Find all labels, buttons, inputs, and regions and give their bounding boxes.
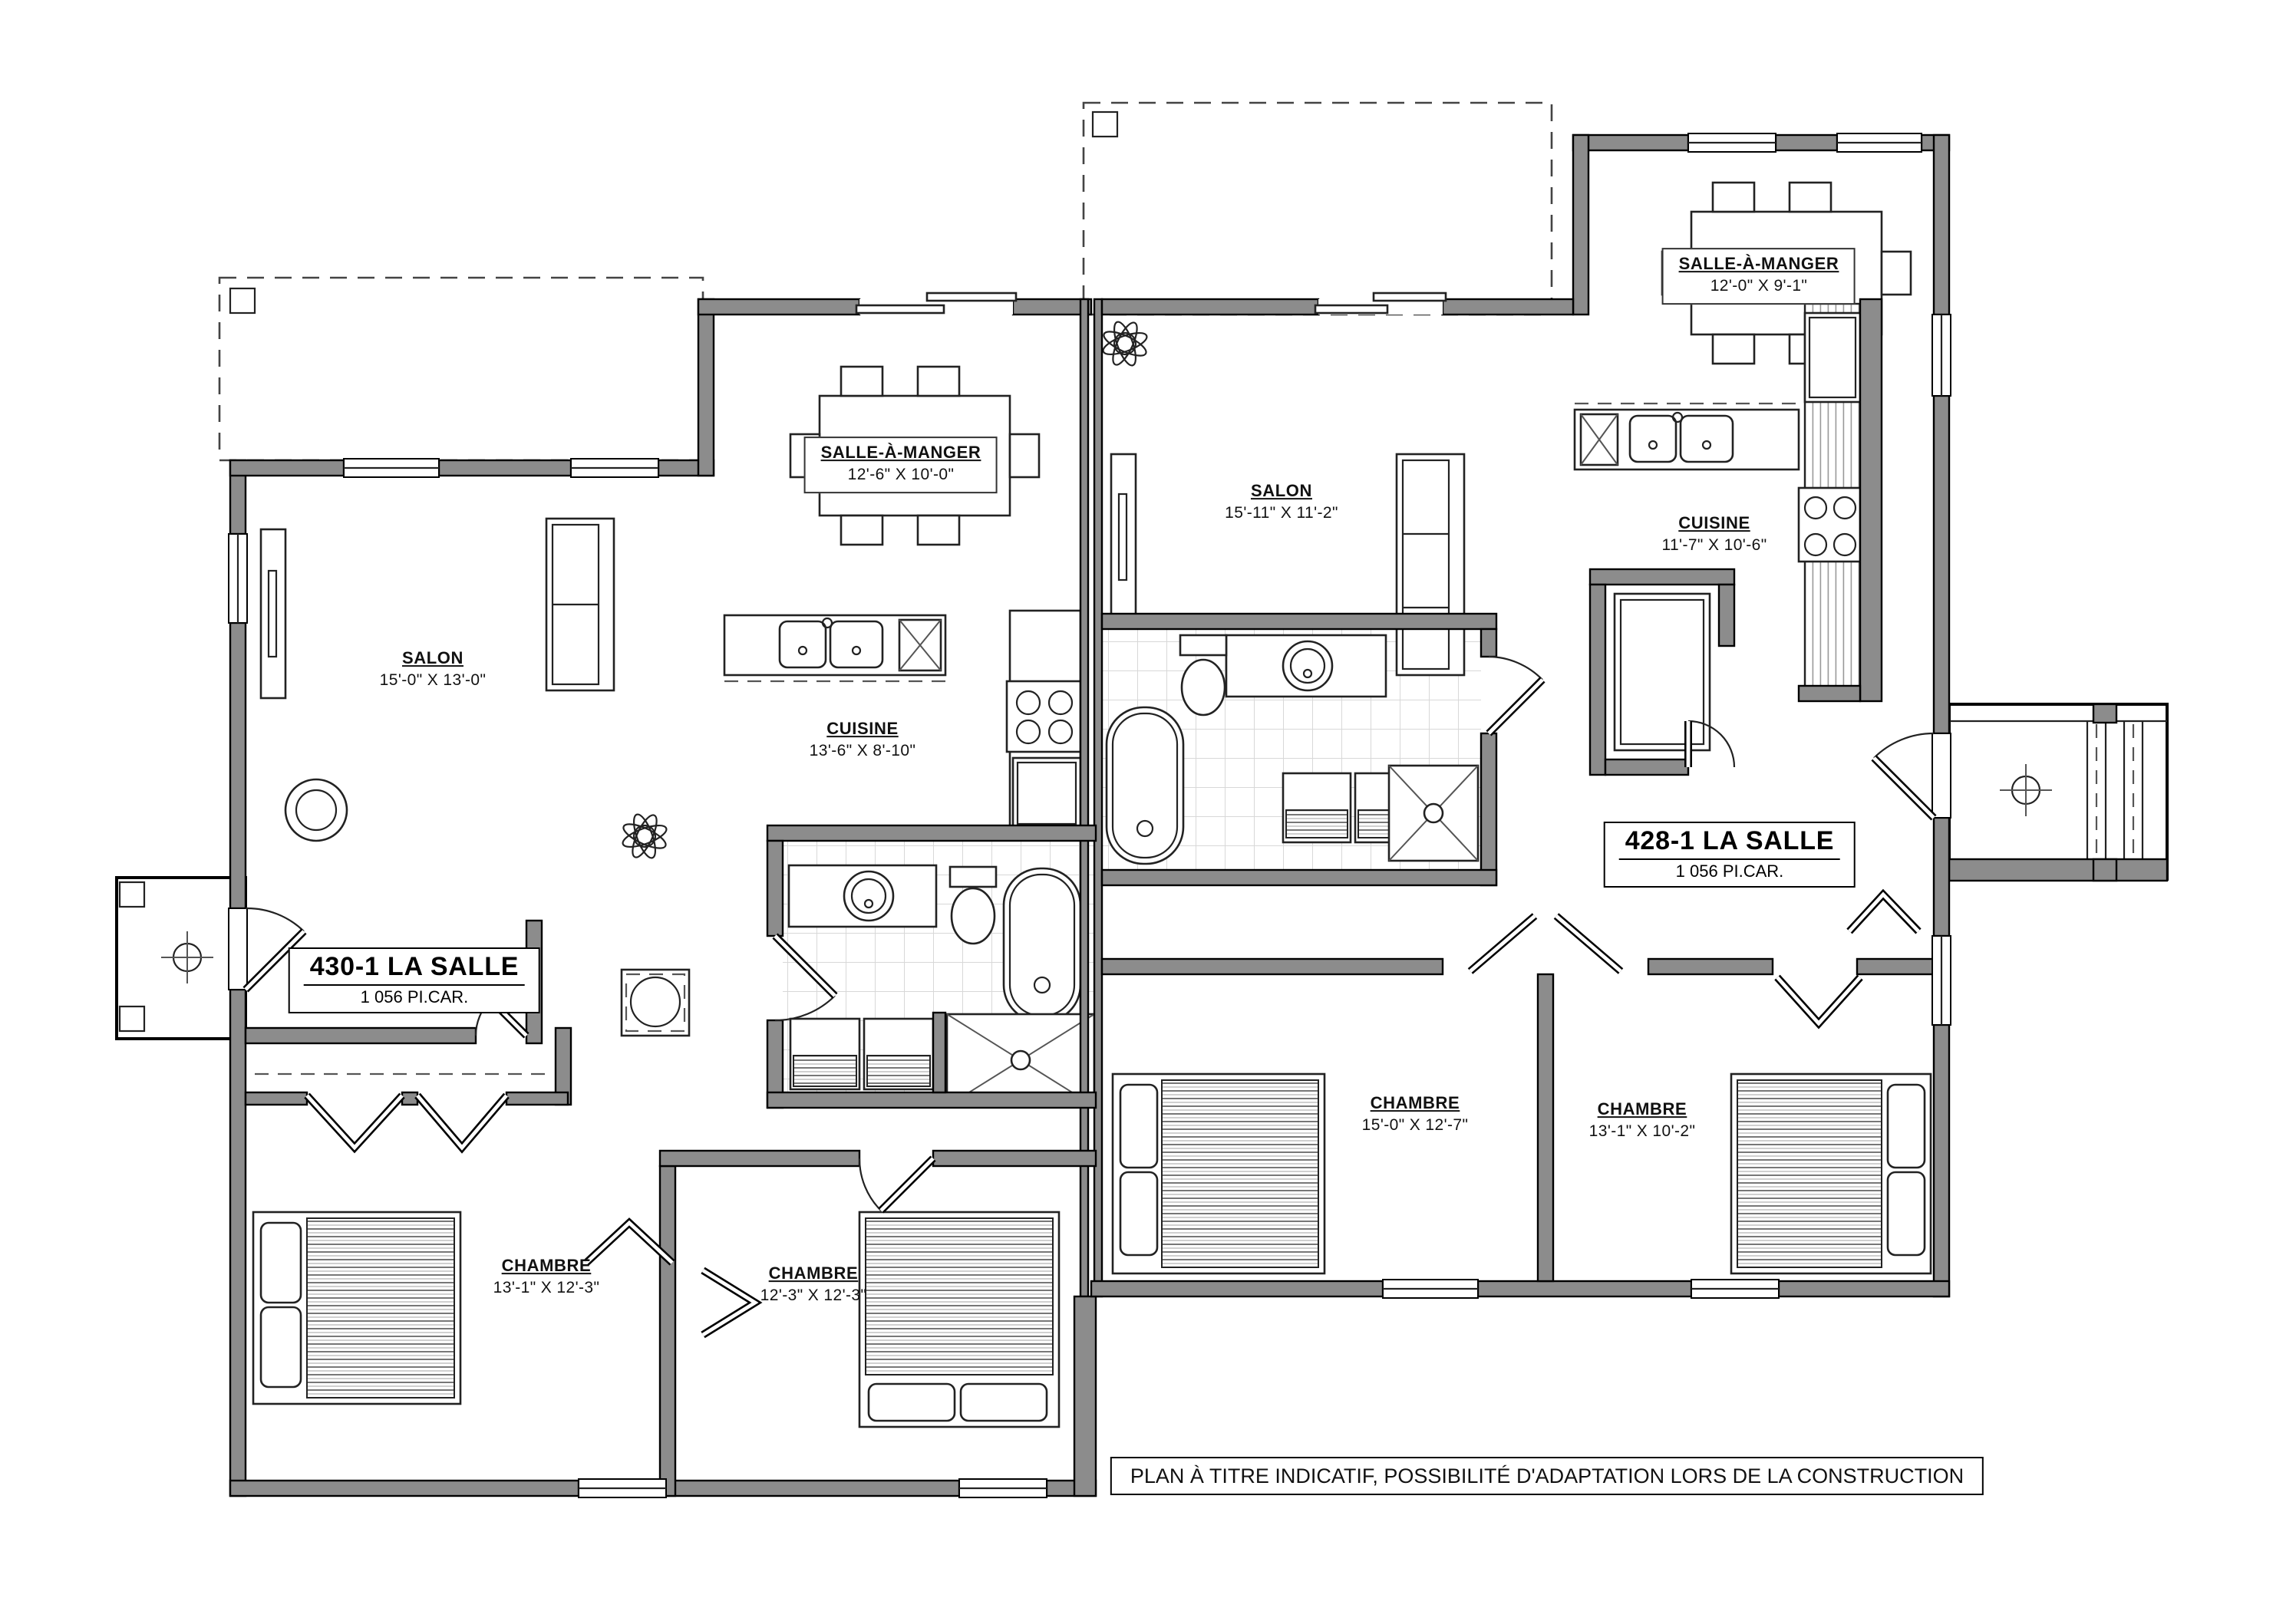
room-label-chambre1-right: CHAMBRE 15'-0" X 12'-7": [1362, 1095, 1469, 1136]
post-icon: [2093, 859, 2116, 881]
room-dims: 15'-0" X 12'-7": [1362, 1116, 1469, 1136]
room-name: SALLE-À-MANGER: [821, 444, 981, 466]
room-name: CHAMBRE: [1362, 1095, 1469, 1116]
room-name: CHAMBRE: [1589, 1101, 1696, 1122]
unit-area: 1 056 PI.CAR.: [304, 986, 526, 1007]
floor-plan-drawing: [0, 0, 2296, 1611]
patio-door-left: [856, 293, 1016, 315]
room-dims: 13'-6" X 8'-10": [810, 742, 916, 762]
unit-area: 1 056 PI.CAR.: [1619, 860, 1841, 881]
unit-name: 428-1 LA SALLE: [1619, 826, 1841, 860]
post-icon: [2093, 704, 2116, 723]
room-name: SALON: [1225, 483, 1338, 504]
pantry-shelf-icon: [1615, 594, 1710, 750]
unit-name: 430-1 LA SALLE: [304, 952, 526, 986]
room-label-salle-a-manger-left: SALLE-À-MANGER 12'-6" X 10'-0": [804, 437, 998, 493]
room-label-salle-a-manger-right: SALLE-À-MANGER 12'-0" X 9'-1": [1662, 248, 1856, 305]
room-name: CUISINE: [810, 720, 916, 742]
deck-left-dashed: [219, 278, 703, 460]
room-dims: 13'-1" X 12'-3": [493, 1279, 600, 1299]
room-label-chambre1-left: CHAMBRE 13'-1" X 12'-3": [493, 1257, 600, 1299]
toilet-icon: [952, 888, 995, 944]
room-label-chambre2-right: CHAMBRE 13'-1" X 10'-2": [1589, 1101, 1696, 1142]
floor-plan-sheet: SALLE-À-MANGER 12'-6" X 10'-0" SALON 15'…: [0, 0, 2296, 1611]
fridge-icon: [1805, 313, 1860, 402]
room-label-salon-right: SALON 15'-11" X 11'-2": [1225, 483, 1338, 524]
right-beds: [1113, 1074, 1931, 1273]
room-name: SALON: [380, 650, 487, 671]
round-chair-icon: [285, 779, 347, 841]
windows: [229, 133, 1951, 1497]
room-dims: 15'-11" X 11'-2": [1225, 504, 1338, 524]
room-name: CHAMBRE: [493, 1257, 600, 1279]
room-label-cuisine-right: CUISINE 11'-7" X 10'-6": [1661, 515, 1767, 556]
bathtub-icon: [1004, 868, 1080, 1022]
right-porch-stairs: [1949, 704, 2167, 881]
plant-icon: [620, 812, 668, 860]
bathtub-icon: [1107, 707, 1183, 864]
unit-label-428: 428-1 LA SALLE 1 056 PI.CAR.: [1604, 822, 1856, 888]
room-label-salon-left: SALON 15'-0" X 13'-0": [380, 650, 487, 691]
room-name: CUISINE: [1661, 515, 1767, 536]
room-name: SALLE-À-MANGER: [1679, 255, 1839, 277]
left-porch: [117, 878, 246, 1039]
sofa-icon: [1397, 454, 1464, 675]
plant-icon: [1100, 319, 1149, 367]
entry-door-right: [1874, 733, 1951, 818]
patio-door-right: [1315, 293, 1446, 315]
room-dims: 12'-0" X 9'-1": [1679, 277, 1839, 297]
room-dims: 11'-7" X 10'-6": [1661, 536, 1767, 556]
room-label-cuisine-left: CUISINE 13'-6" X 8'-10": [810, 720, 916, 762]
deck-right-dashed: [1084, 103, 1552, 315]
room-dims: 15'-0" X 13'-0": [380, 671, 487, 691]
fridge-icon: [1013, 758, 1080, 829]
room-dims: 13'-1" X 10'-2": [1589, 1122, 1696, 1142]
room-name: CHAMBRE: [760, 1265, 867, 1286]
room-dims: 12'-6" X 10'-0": [821, 466, 981, 486]
room-dims: 12'-3" X 12'-3": [760, 1286, 867, 1306]
stove-icon: [1007, 681, 1080, 752]
room-label-chambre2-left: CHAMBRE 12'-3" X 12'-3": [760, 1265, 867, 1306]
toilet-icon: [1182, 660, 1225, 715]
disclaimer-note: PLAN À TITRE INDICATIF, POSSIBILITÉ D'AD…: [1110, 1457, 1984, 1495]
unit-label-430: 430-1 LA SALLE 1 056 PI.CAR.: [289, 947, 541, 1013]
